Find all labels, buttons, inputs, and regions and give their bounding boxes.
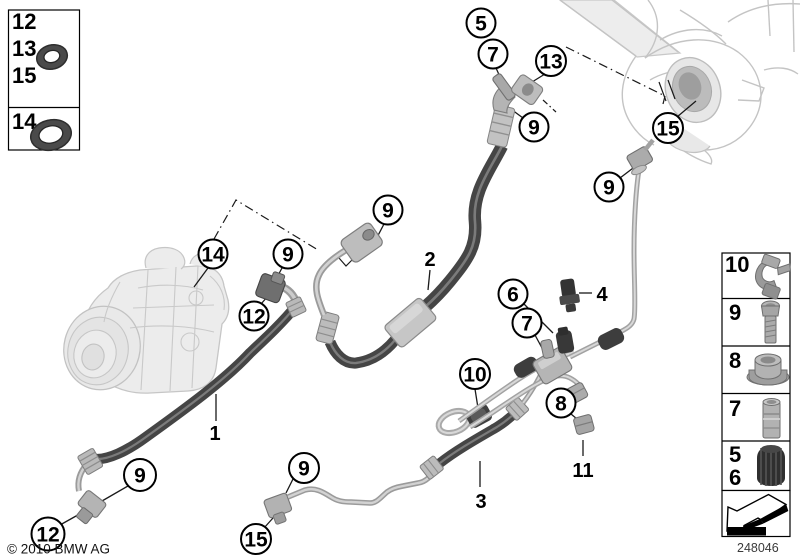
- svg-text:12: 12: [12, 9, 36, 34]
- svg-text:15: 15: [656, 118, 680, 141]
- svg-text:8: 8: [555, 393, 567, 416]
- svg-text:7: 7: [487, 44, 499, 67]
- svg-text:9: 9: [528, 117, 540, 140]
- svg-text:5: 5: [729, 442, 741, 467]
- svg-text:© 2010 BMW AG: © 2010 BMW AG: [7, 542, 110, 557]
- svg-text:7: 7: [521, 313, 533, 336]
- svg-text:15: 15: [244, 529, 268, 552]
- svg-text:13: 13: [12, 36, 36, 61]
- svg-text:8: 8: [729, 348, 741, 373]
- svg-text:9: 9: [382, 200, 394, 223]
- svg-text:6: 6: [507, 284, 519, 307]
- svg-text:9: 9: [282, 244, 294, 267]
- svg-text:4: 4: [596, 284, 608, 306]
- svg-text:2: 2: [424, 249, 435, 271]
- svg-text:248046: 248046: [737, 541, 779, 555]
- svg-text:12: 12: [242, 306, 265, 329]
- svg-text:15: 15: [12, 63, 36, 88]
- svg-text:10: 10: [463, 364, 486, 387]
- svg-text:1: 1: [209, 423, 220, 445]
- svg-text:9: 9: [729, 300, 741, 325]
- svg-text:5: 5: [475, 13, 487, 36]
- svg-text:6: 6: [729, 465, 741, 490]
- svg-text:9: 9: [134, 465, 146, 488]
- svg-text:9: 9: [603, 177, 615, 200]
- svg-text:11: 11: [572, 460, 593, 482]
- svg-text:3: 3: [475, 491, 486, 513]
- svg-text:10: 10: [725, 252, 749, 277]
- svg-text:14: 14: [201, 244, 225, 267]
- svg-text:7: 7: [729, 396, 741, 421]
- svg-text:9: 9: [298, 458, 310, 481]
- svg-text:13: 13: [539, 51, 562, 74]
